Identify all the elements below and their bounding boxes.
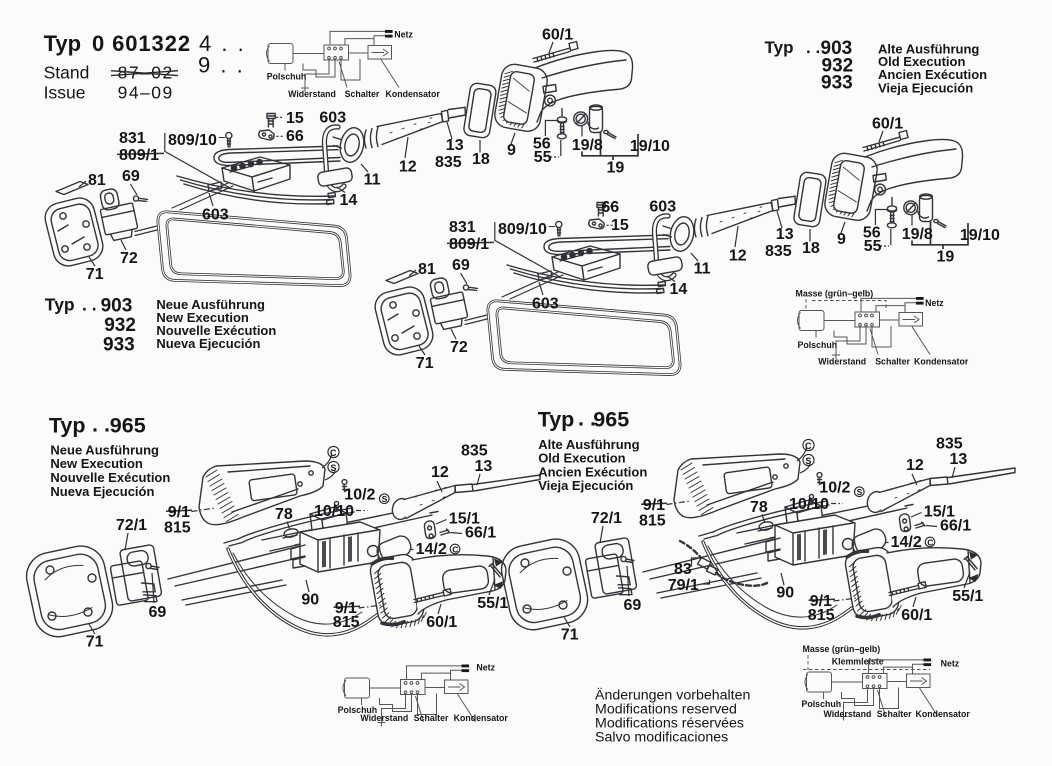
svg-text:. .: . .: [82, 295, 97, 315]
svg-text:Vieja Ejecución: Vieja Ejecución: [878, 80, 973, 95]
svg-text:903: 903: [101, 296, 133, 317]
svg-text:Typ: Typ: [49, 414, 86, 438]
svg-text:Schalter: Schalter: [877, 709, 912, 719]
svg-text:933: 933: [103, 334, 135, 355]
svg-text:933: 933: [821, 73, 853, 94]
svg-text:83: 83: [674, 561, 692, 578]
svg-text:Polschuh: Polschuh: [267, 71, 307, 81]
svg-text:Schalter: Schalter: [414, 713, 449, 723]
svg-text:Typ: Typ: [44, 31, 81, 56]
svg-text:Widerstand: Widerstand: [360, 713, 408, 723]
svg-text:Widerstand: Widerstand: [288, 89, 336, 99]
svg-text:. .: . .: [806, 38, 820, 57]
svg-text:Kondensator: Kondensator: [454, 713, 509, 723]
svg-text:Schalter: Schalter: [345, 89, 380, 99]
svg-text:9 . .: 9 . .: [198, 53, 245, 78]
svg-text:Salvo modificaciones: Salvo modificaciones: [595, 730, 728, 746]
svg-text:Typ: Typ: [45, 295, 75, 315]
svg-text:Masse (grün–gelb): Masse (grün–gelb): [796, 288, 874, 298]
svg-text:965: 965: [110, 414, 146, 438]
svg-text:Schalter: Schalter: [875, 356, 910, 366]
svg-text:Netz: Netz: [476, 662, 495, 672]
svg-text:New Execution: New Execution: [50, 456, 143, 471]
svg-text:932: 932: [104, 315, 136, 336]
svg-text:Nueva Ejecución: Nueva Ejecución: [156, 336, 260, 351]
svg-text:Netz: Netz: [941, 659, 960, 669]
svg-text:66: 66: [601, 199, 619, 216]
svg-text:Widerstand: Widerstand: [818, 356, 866, 366]
svg-text:Nueva Ejecución: Nueva Ejecución: [50, 484, 154, 499]
svg-text:Stand: Stand: [44, 63, 90, 83]
svg-text:Netz: Netz: [925, 298, 944, 308]
svg-text:0 601322: 0 601322: [92, 31, 191, 56]
svg-text:Widerstand: Widerstand: [824, 709, 872, 719]
svg-text:965: 965: [593, 407, 629, 431]
svg-text:94–09: 94–09: [118, 83, 174, 103]
svg-text:15: 15: [611, 217, 629, 234]
svg-text:79/1: 79/1: [668, 577, 699, 594]
svg-text:Kondensator: Kondensator: [386, 89, 441, 99]
svg-text:15: 15: [286, 110, 304, 127]
svg-text:. .: . .: [92, 413, 110, 437]
svg-text:Polschuh: Polschuh: [798, 340, 838, 350]
svg-text:Klemmleiste: Klemmleiste: [832, 657, 884, 667]
svg-text:Netz: Netz: [394, 29, 413, 39]
svg-text:Kondensator: Kondensator: [914, 356, 969, 366]
svg-text:Typ: Typ: [765, 38, 794, 57]
svg-text:66: 66: [286, 128, 304, 145]
svg-text:Vieja Ejecución: Vieja Ejecución: [538, 478, 633, 493]
svg-text:Kondensator: Kondensator: [916, 709, 971, 719]
svg-text:Polschuh: Polschuh: [802, 699, 842, 709]
svg-text:Masse (grün–gelb): Masse (grün–gelb): [803, 644, 881, 654]
svg-text:Issue: Issue: [44, 83, 86, 103]
svg-text:Typ: Typ: [538, 407, 575, 431]
